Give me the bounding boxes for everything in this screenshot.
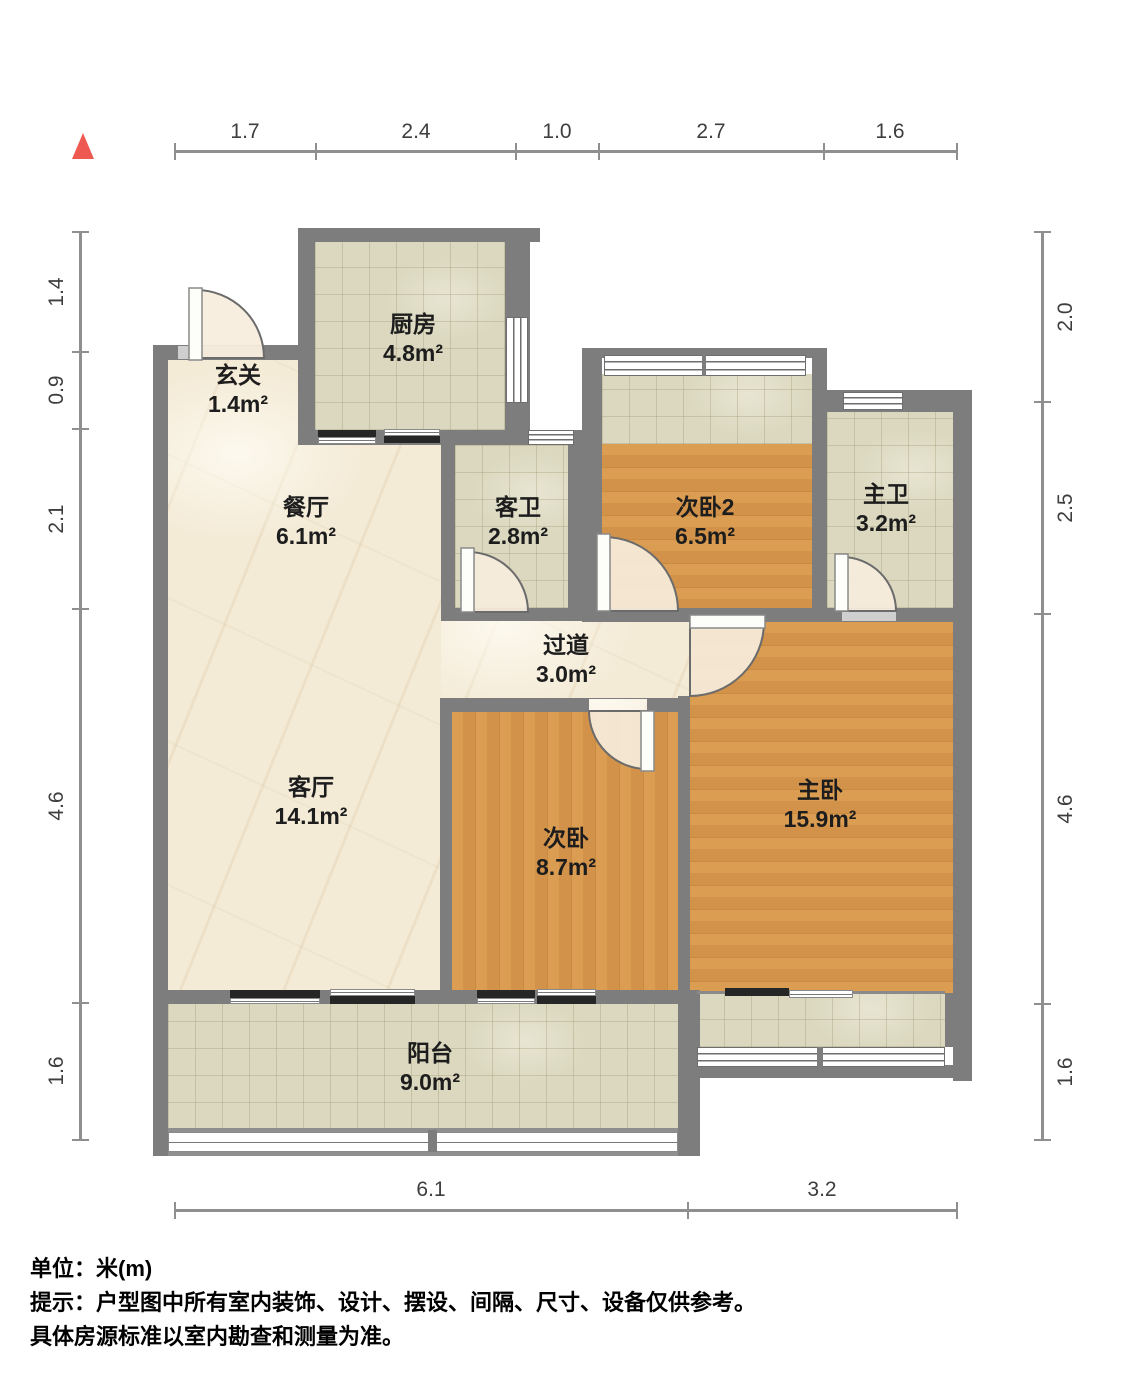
room-area: 15.9m² bbox=[784, 805, 857, 834]
room-area: 4.8m² bbox=[383, 339, 443, 368]
room-label-master-bath: 主卫 3.2m² bbox=[856, 480, 916, 538]
room-area: 3.0m² bbox=[536, 660, 596, 689]
master-bath-door-arc bbox=[842, 557, 896, 611]
room-label-kitchen: 厨房 4.8m² bbox=[383, 310, 443, 368]
room-label-bedroom2: 次卧2 6.5m² bbox=[675, 493, 735, 551]
bedroom-door-arc bbox=[589, 711, 647, 769]
room-label-guest-bath: 客卫 2.8m² bbox=[488, 493, 548, 551]
room-name: 过道 bbox=[536, 631, 596, 660]
master-bedroom-door-leaf bbox=[690, 615, 765, 628]
room-label-living: 客厅 14.1m² bbox=[275, 773, 348, 831]
room-area: 14.1m² bbox=[275, 802, 348, 831]
master-bath-door-leaf bbox=[835, 554, 848, 611]
guest-bath-door-arc bbox=[468, 552, 528, 612]
bedroom2-door-leaf bbox=[597, 534, 610, 611]
room-area: 9.0m² bbox=[400, 1068, 460, 1097]
footer-standard-line: 具体房源标准以室内勘查和测量为准。 bbox=[30, 1320, 756, 1354]
room-label-balcony: 阳台 9.0m² bbox=[400, 1039, 460, 1097]
room-name: 主卫 bbox=[856, 480, 916, 509]
room-area: 2.8m² bbox=[488, 522, 548, 551]
room-name: 阳台 bbox=[400, 1039, 460, 1068]
room-label-corridor: 过道 3.0m² bbox=[536, 631, 596, 689]
bedroom2-door-arc bbox=[604, 537, 678, 611]
footer-tip-line: 提示：户型图中所有室内装饰、设计、摆设、间隔、尺寸、设备仅供参考。 bbox=[30, 1286, 756, 1320]
room-name: 主卧 bbox=[784, 776, 857, 805]
room-name: 客厅 bbox=[275, 773, 348, 802]
master-bedroom-door-arc bbox=[690, 622, 764, 696]
bedroom-door-leaf bbox=[641, 711, 654, 771]
room-area: 1.4m² bbox=[208, 390, 268, 419]
guest-bath-door-leaf bbox=[461, 548, 474, 612]
room-label-master-bedroom: 主卧 15.9m² bbox=[784, 776, 857, 834]
room-name: 次卧 bbox=[536, 824, 596, 853]
footer-disclaimer: 单位：米(m) 提示：户型图中所有室内装饰、设计、摆设、间隔、尺寸、设备仅供参考… bbox=[30, 1252, 756, 1354]
room-name: 餐厅 bbox=[276, 493, 336, 522]
entry-door-leaf bbox=[189, 288, 202, 360]
room-name: 客卫 bbox=[488, 493, 548, 522]
room-label-dining: 餐厅 6.1m² bbox=[276, 493, 336, 551]
floorplan-canvas: 1.7 2.4 1.0 2.7 1.6 1.4 0.9 2.1 4.6 1.6 … bbox=[0, 0, 1125, 1375]
room-area: 6.5m² bbox=[675, 522, 735, 551]
room-area: 6.1m² bbox=[276, 522, 336, 551]
room-area: 3.2m² bbox=[856, 509, 916, 538]
room-label-entry: 玄关 1.4m² bbox=[208, 361, 268, 419]
room-name: 玄关 bbox=[208, 361, 268, 390]
room-name: 次卧2 bbox=[675, 493, 735, 522]
entry-door-arc bbox=[196, 290, 264, 358]
footer-unit-line: 单位：米(m) bbox=[30, 1252, 756, 1286]
room-label-bedroom: 次卧 8.7m² bbox=[536, 824, 596, 882]
room-area: 8.7m² bbox=[536, 853, 596, 882]
room-name: 厨房 bbox=[383, 310, 443, 339]
